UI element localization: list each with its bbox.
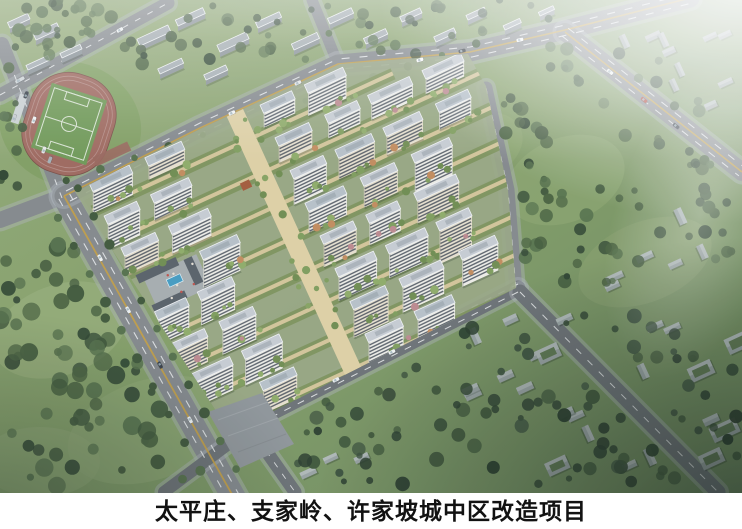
caption-bar: 太平庄、支家岭、许家坡城中区改造项目: [0, 493, 742, 529]
haze-overlay: [0, 0, 742, 493]
screenshot: 太平庄、支家岭、许家坡城中区改造项目: [0, 0, 742, 529]
aerial-rendering: [0, 0, 742, 493]
caption-text: 太平庄、支家岭、许家坡城中区改造项目: [155, 493, 587, 529]
